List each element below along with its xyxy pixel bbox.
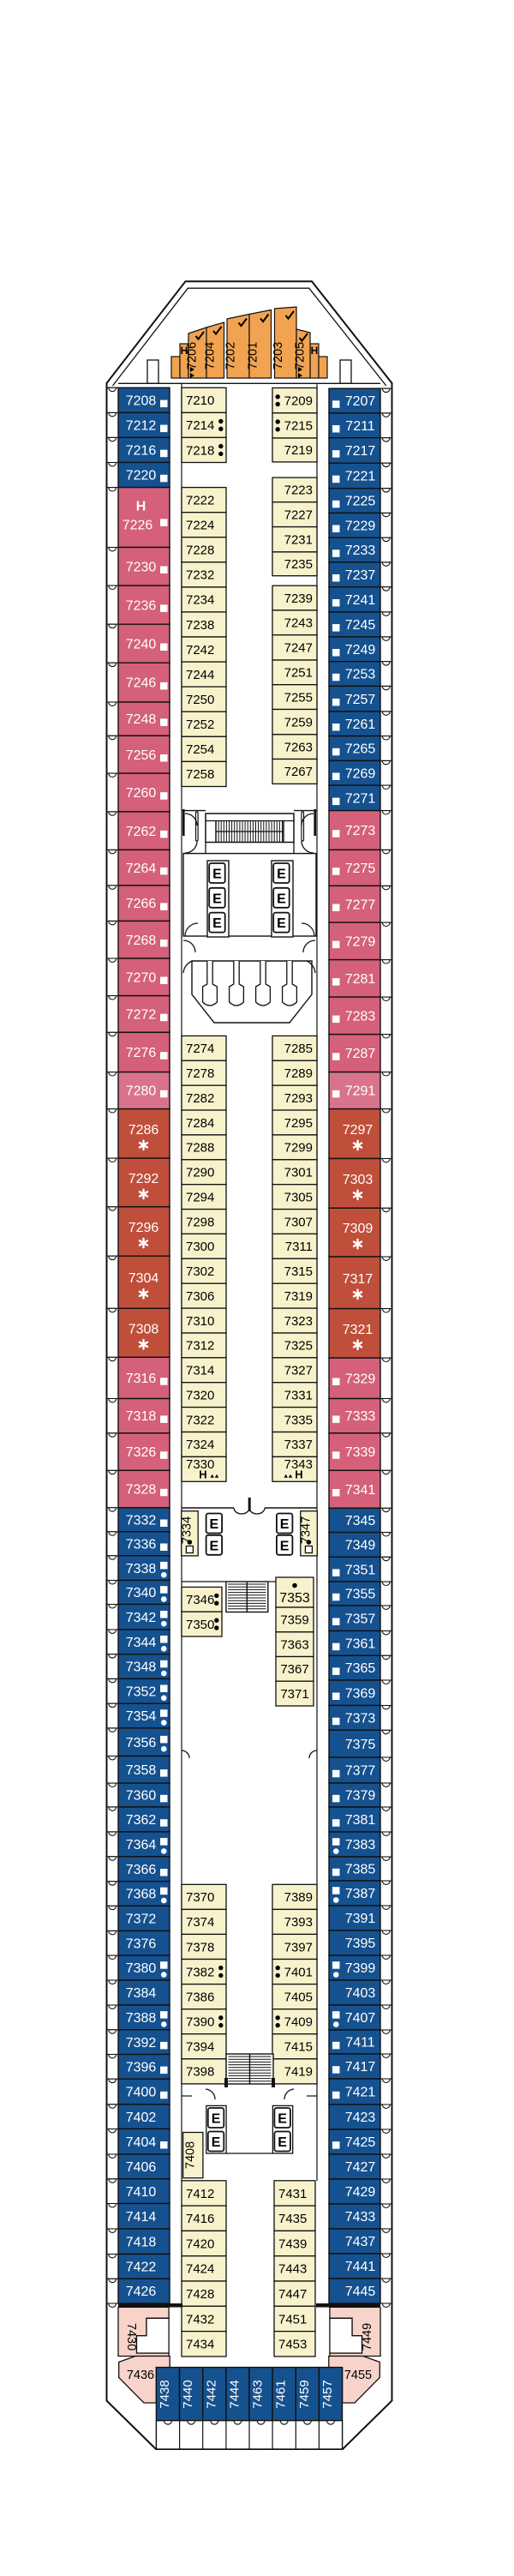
svg-text:7282: 7282 — [186, 1091, 214, 1106]
svg-text:7395: 7395 — [345, 1937, 376, 1951]
svg-text:7294: 7294 — [186, 1190, 214, 1204]
svg-text:7443: 7443 — [278, 2262, 307, 2277]
svg-text:7336: 7336 — [126, 1537, 157, 1552]
svg-text:7252: 7252 — [186, 718, 214, 732]
svg-text:7457: 7457 — [320, 2380, 335, 2408]
svg-text:7417: 7417 — [345, 2060, 376, 2075]
svg-text:7227: 7227 — [284, 508, 313, 523]
svg-text:E: E — [209, 1539, 218, 1553]
svg-text:7441: 7441 — [345, 2260, 376, 2274]
svg-text:7238: 7238 — [186, 618, 214, 633]
svg-text:7298: 7298 — [186, 1215, 214, 1229]
svg-text:7351: 7351 — [345, 1563, 376, 1577]
svg-text:7289: 7289 — [284, 1066, 313, 1081]
svg-text:7232: 7232 — [186, 568, 214, 583]
svg-text:7453: 7453 — [278, 2338, 307, 2352]
svg-text:7398: 7398 — [186, 2065, 214, 2080]
svg-text:7355: 7355 — [345, 1588, 376, 1602]
svg-text:7366: 7366 — [126, 1863, 157, 1877]
svg-text:7279: 7279 — [345, 934, 376, 949]
svg-text:7346: 7346 — [186, 1593, 214, 1607]
svg-text:7259: 7259 — [284, 715, 313, 730]
svg-text:7300: 7300 — [186, 1240, 214, 1254]
svg-text:7239: 7239 — [284, 591, 313, 606]
svg-text:7222: 7222 — [186, 493, 214, 507]
svg-text:7206: 7206 — [186, 342, 200, 369]
svg-text:7350: 7350 — [186, 1618, 214, 1632]
svg-text:7432: 7432 — [186, 2312, 214, 2327]
svg-text:7429: 7429 — [345, 2185, 376, 2200]
svg-text:7304: 7304 — [128, 1271, 159, 1286]
svg-text:H: H — [295, 1468, 302, 1481]
svg-text:7215: 7215 — [284, 419, 313, 434]
svg-text:7349: 7349 — [345, 1539, 376, 1553]
svg-text:7421: 7421 — [345, 2086, 376, 2100]
svg-text:E: E — [212, 892, 222, 906]
svg-text:7400: 7400 — [126, 2086, 157, 2100]
svg-text:7314: 7314 — [186, 1364, 214, 1378]
svg-text:7353: 7353 — [279, 1591, 310, 1606]
svg-text:7240: 7240 — [126, 637, 157, 652]
svg-text:7461: 7461 — [274, 2380, 289, 2408]
svg-text:7329: 7329 — [345, 1372, 376, 1386]
svg-text:7326: 7326 — [126, 1445, 157, 1460]
svg-text:7340: 7340 — [126, 1586, 157, 1600]
svg-text:7435: 7435 — [278, 2212, 307, 2226]
svg-text:7399: 7399 — [345, 1961, 376, 1976]
svg-text:E: E — [212, 868, 222, 882]
svg-text:7258: 7258 — [186, 767, 214, 782]
svg-text:7361: 7361 — [345, 1637, 376, 1652]
svg-text:7371: 7371 — [280, 1687, 308, 1702]
svg-text:7376: 7376 — [126, 1937, 157, 1951]
svg-text:7230: 7230 — [126, 560, 157, 574]
svg-text:7205: 7205 — [294, 342, 308, 369]
svg-text:7416: 7416 — [186, 2212, 214, 2226]
svg-text:7359: 7359 — [280, 1613, 308, 1628]
svg-text:7397: 7397 — [284, 1940, 313, 1955]
svg-text:7249: 7249 — [345, 643, 376, 658]
svg-text:E: E — [277, 916, 286, 931]
svg-text:7377: 7377 — [345, 1764, 376, 1779]
svg-text:7449: 7449 — [361, 2323, 374, 2351]
svg-text:7299: 7299 — [284, 1141, 313, 1156]
svg-text:7393: 7393 — [284, 1915, 313, 1930]
svg-text:7331: 7331 — [284, 1389, 313, 1403]
svg-text:7408: 7408 — [183, 2141, 197, 2169]
svg-text:H: H — [199, 1468, 206, 1481]
svg-text:7365: 7365 — [345, 1661, 376, 1676]
svg-text:7335: 7335 — [284, 1413, 313, 1427]
svg-text:7241: 7241 — [345, 593, 376, 608]
svg-text:7447: 7447 — [278, 2287, 307, 2302]
svg-text:7372: 7372 — [126, 1912, 157, 1927]
svg-text:7410: 7410 — [126, 2185, 157, 2200]
svg-text:7246: 7246 — [126, 676, 157, 691]
svg-text:7402: 7402 — [126, 2111, 157, 2125]
svg-text:E: E — [277, 892, 286, 906]
svg-text:7237: 7237 — [345, 568, 376, 583]
svg-text:7383: 7383 — [345, 1838, 376, 1852]
svg-text:7293: 7293 — [284, 1091, 313, 1106]
svg-text:7379: 7379 — [345, 1789, 376, 1804]
svg-text:7263: 7263 — [284, 740, 313, 754]
svg-text:7423: 7423 — [345, 2111, 376, 2125]
svg-text:7223: 7223 — [284, 483, 313, 498]
svg-text:7431: 7431 — [278, 2187, 307, 2201]
svg-text:7415: 7415 — [284, 2040, 313, 2055]
svg-text:7219: 7219 — [284, 443, 313, 458]
svg-text:7233: 7233 — [345, 543, 376, 558]
svg-text:7284: 7284 — [186, 1116, 214, 1131]
svg-text:7268: 7268 — [126, 934, 157, 948]
svg-text:7306: 7306 — [186, 1289, 214, 1304]
svg-text:7201: 7201 — [247, 342, 260, 369]
svg-text:7218: 7218 — [186, 443, 214, 458]
svg-text:7358: 7358 — [126, 1763, 157, 1778]
svg-text:7339: 7339 — [345, 1445, 376, 1460]
svg-text:7444: 7444 — [227, 2380, 242, 2408]
svg-text:E: E — [280, 1539, 290, 1553]
svg-text:7422: 7422 — [126, 2261, 157, 2275]
svg-text:7275: 7275 — [345, 862, 376, 876]
svg-text:7386: 7386 — [186, 1990, 214, 2004]
svg-text:7301: 7301 — [284, 1166, 313, 1180]
svg-text:7337: 7337 — [284, 1438, 313, 1452]
svg-text:7370: 7370 — [186, 1890, 214, 1905]
svg-text:7245: 7245 — [345, 618, 376, 633]
svg-text:7357: 7357 — [345, 1612, 376, 1626]
svg-text:7409: 7409 — [284, 2015, 313, 2030]
svg-text:7354: 7354 — [126, 1709, 157, 1724]
svg-text:7225: 7225 — [345, 495, 376, 509]
svg-text:7459: 7459 — [297, 2380, 312, 2408]
svg-text:7390: 7390 — [186, 2015, 214, 2030]
svg-text:7285: 7285 — [284, 1042, 313, 1056]
svg-text:7221: 7221 — [345, 470, 376, 484]
svg-text:7228: 7228 — [186, 543, 214, 558]
svg-text:7363: 7363 — [280, 1638, 308, 1653]
svg-text:7418: 7418 — [126, 2235, 157, 2249]
svg-text:7267: 7267 — [284, 765, 313, 779]
svg-text:7257: 7257 — [345, 693, 376, 707]
svg-text:7323: 7323 — [284, 1314, 313, 1329]
svg-text:7345: 7345 — [345, 1514, 376, 1528]
svg-text:7202: 7202 — [224, 342, 238, 369]
svg-text:7427: 7427 — [345, 2160, 376, 2175]
svg-text:7362: 7362 — [126, 1813, 157, 1828]
svg-text:7414: 7414 — [126, 2210, 157, 2225]
svg-text:7242: 7242 — [186, 643, 214, 658]
svg-text:7210: 7210 — [186, 393, 214, 408]
svg-text:7269: 7269 — [345, 766, 376, 781]
svg-text:7332: 7332 — [126, 1513, 157, 1528]
svg-text:7405: 7405 — [284, 1990, 313, 2004]
svg-text:7272: 7272 — [126, 1008, 157, 1023]
svg-text:7378: 7378 — [186, 1940, 214, 1955]
svg-text:7250: 7250 — [186, 693, 214, 707]
svg-text:7262: 7262 — [126, 825, 157, 839]
svg-text:7451: 7451 — [278, 2312, 307, 2327]
svg-text:E: E — [212, 916, 222, 931]
svg-text:E: E — [278, 2112, 287, 2127]
svg-text:7247: 7247 — [284, 641, 313, 656]
svg-text:7401: 7401 — [284, 1965, 313, 1979]
svg-text:7412: 7412 — [186, 2187, 214, 2201]
svg-text:E: E — [278, 2135, 287, 2150]
svg-text:7463: 7463 — [251, 2380, 266, 2408]
svg-text:7312: 7312 — [186, 1339, 214, 1354]
svg-text:7440: 7440 — [181, 2380, 195, 2408]
svg-text:7270: 7270 — [126, 970, 157, 985]
svg-text:7420: 7420 — [186, 2237, 214, 2251]
svg-text:7445: 7445 — [345, 2285, 376, 2299]
svg-text:E: E — [209, 1517, 218, 1532]
svg-text:7328: 7328 — [126, 1483, 157, 1498]
svg-text:7235: 7235 — [284, 557, 313, 572]
svg-text:7316: 7316 — [126, 1372, 157, 1386]
svg-text:H: H — [311, 345, 319, 357]
svg-text:7217: 7217 — [345, 444, 376, 459]
svg-text:7388: 7388 — [126, 2011, 157, 2026]
svg-text:7288: 7288 — [186, 1141, 214, 1156]
svg-text:7394: 7394 — [186, 2040, 214, 2055]
svg-text:7404: 7404 — [126, 2135, 157, 2150]
svg-text:7226: 7226 — [123, 519, 153, 533]
svg-text:7424: 7424 — [186, 2262, 214, 2277]
svg-text:7364: 7364 — [126, 1838, 157, 1852]
svg-text:7292: 7292 — [128, 1172, 159, 1186]
svg-text:7325: 7325 — [284, 1339, 313, 1354]
svg-text:7341: 7341 — [345, 1483, 376, 1498]
svg-text:7342: 7342 — [126, 1611, 157, 1625]
svg-text:7243: 7243 — [284, 616, 313, 631]
svg-text:7278: 7278 — [186, 1066, 214, 1081]
svg-text:7256: 7256 — [126, 748, 157, 763]
svg-text:7311: 7311 — [285, 1240, 313, 1254]
svg-text:7375: 7375 — [345, 1738, 376, 1752]
svg-text:7403: 7403 — [345, 1986, 376, 2001]
svg-text:7334: 7334 — [181, 1516, 194, 1544]
svg-text:7307: 7307 — [284, 1215, 313, 1229]
svg-text:7277: 7277 — [345, 898, 376, 912]
svg-text:7216: 7216 — [126, 444, 157, 459]
svg-text:7236: 7236 — [126, 598, 157, 613]
svg-text:7374: 7374 — [186, 1915, 214, 1930]
svg-text:7220: 7220 — [126, 469, 157, 483]
svg-text:7207: 7207 — [345, 394, 376, 409]
svg-text:7310: 7310 — [186, 1314, 214, 1329]
svg-text:7411: 7411 — [345, 2036, 375, 2051]
svg-text:7367: 7367 — [280, 1662, 308, 1677]
svg-text:7333: 7333 — [345, 1409, 376, 1424]
svg-text:7303: 7303 — [343, 1173, 374, 1187]
svg-text:7368: 7368 — [126, 1888, 157, 1902]
svg-text:7271: 7271 — [345, 792, 376, 807]
svg-text:7280: 7280 — [126, 1084, 157, 1099]
svg-text:7260: 7260 — [126, 786, 157, 801]
svg-text:7433: 7433 — [345, 2210, 376, 2225]
svg-text:7255: 7255 — [284, 690, 313, 705]
svg-text:7261: 7261 — [345, 718, 376, 732]
svg-text:7302: 7302 — [186, 1264, 214, 1279]
svg-text:7214: 7214 — [186, 418, 214, 433]
svg-text:7321: 7321 — [343, 1323, 374, 1337]
svg-text:E: E — [212, 2135, 221, 2150]
svg-text:7291: 7291 — [345, 1084, 376, 1099]
svg-text:7229: 7229 — [345, 519, 376, 533]
svg-text:7347: 7347 — [300, 1516, 314, 1544]
svg-text:7254: 7254 — [186, 742, 214, 757]
svg-text:7392: 7392 — [126, 2036, 157, 2051]
svg-text:7428: 7428 — [186, 2287, 214, 2302]
svg-text:7425: 7425 — [345, 2135, 376, 2150]
svg-text:7319: 7319 — [284, 1289, 313, 1304]
svg-text:7352: 7352 — [126, 1684, 157, 1699]
svg-text:7455: 7455 — [344, 2369, 372, 2382]
svg-text:7407: 7407 — [345, 2011, 376, 2026]
svg-text:7283: 7283 — [345, 1009, 376, 1024]
svg-text:7287: 7287 — [345, 1047, 376, 1061]
svg-text:7309: 7309 — [343, 1222, 374, 1236]
svg-text:7203: 7203 — [272, 342, 285, 369]
svg-text:7318: 7318 — [126, 1409, 157, 1424]
svg-text:7251: 7251 — [284, 666, 313, 681]
svg-text:7324: 7324 — [186, 1438, 214, 1452]
svg-text:7348: 7348 — [126, 1660, 157, 1675]
svg-text:7320: 7320 — [186, 1389, 214, 1403]
svg-text:7315: 7315 — [284, 1264, 313, 1279]
svg-text:7344: 7344 — [126, 1636, 157, 1650]
svg-text:7297: 7297 — [343, 1123, 374, 1138]
svg-text:7274: 7274 — [186, 1042, 214, 1056]
svg-text:7244: 7244 — [186, 668, 214, 682]
svg-text:7430: 7430 — [124, 2323, 138, 2351]
svg-text:E: E — [280, 1517, 290, 1532]
svg-text:7438: 7438 — [158, 2380, 172, 2408]
svg-text:7305: 7305 — [284, 1190, 313, 1204]
svg-text:7384: 7384 — [126, 1986, 157, 2001]
svg-text:7296: 7296 — [128, 1221, 159, 1235]
svg-text:7211: 7211 — [345, 419, 375, 434]
svg-text:7295: 7295 — [284, 1116, 313, 1131]
svg-text:7286: 7286 — [128, 1123, 159, 1138]
svg-text:7264: 7264 — [126, 862, 157, 876]
svg-text:7276: 7276 — [126, 1046, 157, 1060]
svg-text:7360: 7360 — [126, 1789, 157, 1804]
svg-text:7265: 7265 — [345, 742, 376, 757]
svg-text:7382: 7382 — [186, 1965, 214, 1979]
svg-text:7266: 7266 — [126, 897, 157, 911]
svg-text:7322: 7322 — [186, 1413, 214, 1427]
svg-text:7442: 7442 — [204, 2380, 218, 2408]
svg-text:7391: 7391 — [345, 1912, 376, 1926]
svg-text:7389: 7389 — [284, 1890, 313, 1905]
svg-text:7387: 7387 — [345, 1887, 376, 1901]
svg-text:7204: 7204 — [204, 342, 218, 369]
svg-text:7281: 7281 — [345, 972, 376, 987]
svg-text:7253: 7253 — [345, 668, 376, 682]
svg-text:7406: 7406 — [126, 2160, 157, 2175]
svg-text:7381: 7381 — [345, 1813, 376, 1828]
svg-text:7327: 7327 — [284, 1364, 313, 1378]
svg-text:7426: 7426 — [126, 2285, 157, 2299]
svg-text:7380: 7380 — [126, 1961, 157, 1976]
svg-text:7209: 7209 — [284, 393, 313, 408]
svg-text:7273: 7273 — [345, 824, 376, 838]
svg-text:E: E — [212, 2112, 221, 2127]
svg-text:7439: 7439 — [278, 2237, 307, 2251]
svg-text:7434: 7434 — [186, 2338, 214, 2352]
svg-text:7231: 7231 — [284, 533, 313, 548]
svg-text:7436: 7436 — [127, 2369, 154, 2382]
svg-text:7419: 7419 — [284, 2065, 313, 2080]
svg-text:7373: 7373 — [345, 1712, 376, 1726]
svg-text:7396: 7396 — [126, 2060, 157, 2075]
svg-text:E: E — [277, 868, 286, 882]
svg-text:7248: 7248 — [126, 712, 157, 727]
svg-text:7290: 7290 — [186, 1166, 214, 1180]
svg-text:7212: 7212 — [126, 419, 157, 434]
svg-text:7369: 7369 — [345, 1686, 376, 1701]
svg-text:7208: 7208 — [126, 394, 157, 409]
svg-text:7338: 7338 — [126, 1562, 157, 1576]
svg-text:7385: 7385 — [345, 1863, 376, 1877]
svg-text:7308: 7308 — [128, 1322, 159, 1336]
svg-text:7317: 7317 — [343, 1272, 374, 1287]
svg-text:7224: 7224 — [186, 519, 214, 533]
svg-text:H: H — [136, 500, 146, 514]
svg-text:7356: 7356 — [126, 1736, 157, 1750]
svg-text:7437: 7437 — [345, 2235, 376, 2249]
svg-text:7234: 7234 — [186, 593, 214, 608]
